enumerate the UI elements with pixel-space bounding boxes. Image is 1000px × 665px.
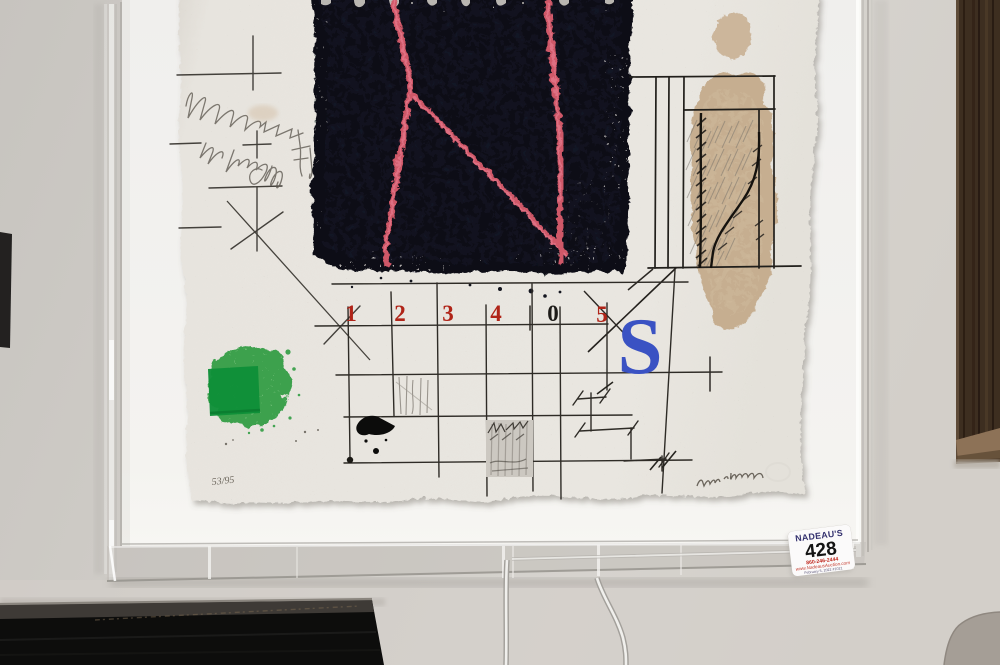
svg-text:S: S	[617, 301, 662, 391]
svg-text:3: 3	[442, 301, 454, 326]
svg-text:4: 4	[490, 301, 502, 326]
svg-text:0: 0	[547, 301, 559, 326]
svg-text:5: 5	[596, 302, 608, 327]
svg-text:2: 2	[394, 301, 406, 326]
svg-text:1: 1	[345, 301, 357, 326]
